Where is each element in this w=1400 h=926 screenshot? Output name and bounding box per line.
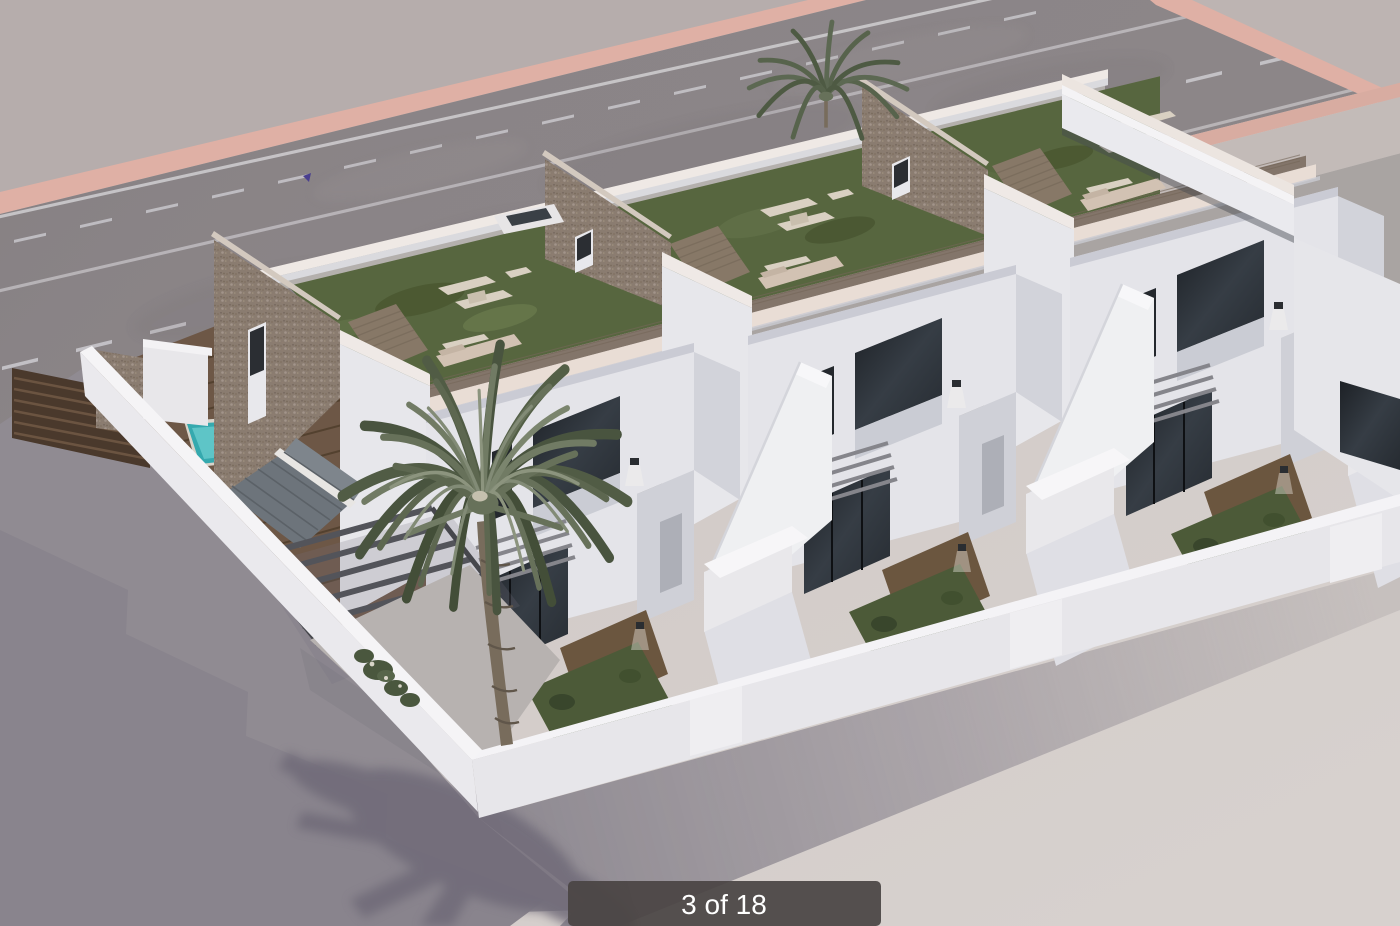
svg-text:3 of 18: 3 of 18 (681, 889, 767, 920)
